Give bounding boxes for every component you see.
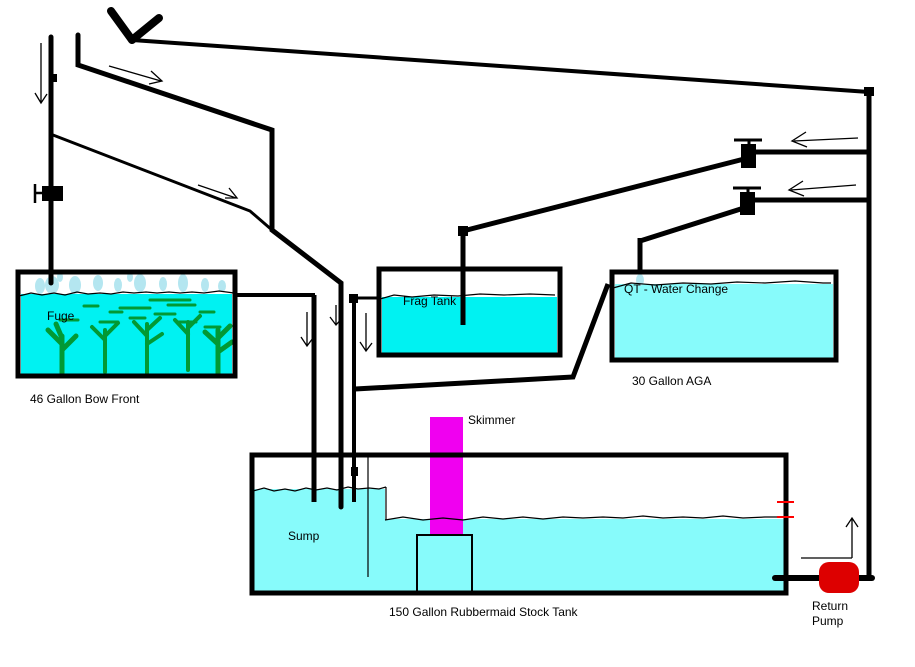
flow-arrow-down-icon bbox=[360, 313, 372, 351]
branch-drain-line bbox=[53, 135, 272, 230]
paint-canvas: Fuge 46 Gallon Bow Front Frag Tank QT - … bbox=[0, 0, 915, 667]
qt-label: QT - Water Change bbox=[624, 282, 728, 296]
pipe-joint bbox=[53, 74, 57, 82]
flow-arrow-left-icon bbox=[789, 181, 856, 196]
skimmer-label: Skimmer bbox=[468, 413, 515, 427]
flow-arrow-down-icon bbox=[35, 43, 47, 103]
return-pump-body bbox=[819, 562, 859, 593]
return-pump-label-line1: Return bbox=[812, 599, 848, 613]
frag-tank-label: Frag Tank bbox=[403, 294, 457, 308]
qt-caption: 30 Gallon AGA bbox=[632, 374, 711, 388]
top-return-line bbox=[132, 40, 869, 92]
flow-arrow-up-icon bbox=[801, 518, 858, 558]
fuge-splashes bbox=[35, 272, 226, 294]
fuge-caption: 46 Gallon Bow Front bbox=[30, 392, 140, 406]
qt-feed-diagonal bbox=[640, 207, 747, 241]
flow-arrow-down-icon bbox=[301, 312, 313, 346]
flow-arrowhead-icon bbox=[111, 11, 159, 40]
flow-arrow-left-icon bbox=[792, 132, 858, 147]
return-pump-label-line2: Pump bbox=[812, 614, 844, 628]
flow-arrow-right-icon bbox=[198, 185, 237, 198]
flow-arrow-right-icon bbox=[109, 66, 162, 84]
stock-tank-water bbox=[253, 489, 785, 593]
stock-tank-caption: 150 Gallon Rubbermaid Stock Tank bbox=[389, 605, 579, 619]
fuge-drain-valve bbox=[35, 184, 63, 203]
skimmer-body bbox=[430, 417, 463, 534]
sump-label: Sump bbox=[288, 529, 320, 543]
pipe-joint bbox=[351, 467, 358, 476]
plumbing-diagram: Fuge 46 Gallon Bow Front Frag Tank QT - … bbox=[0, 0, 915, 667]
fuge-label: Fuge bbox=[47, 309, 75, 323]
